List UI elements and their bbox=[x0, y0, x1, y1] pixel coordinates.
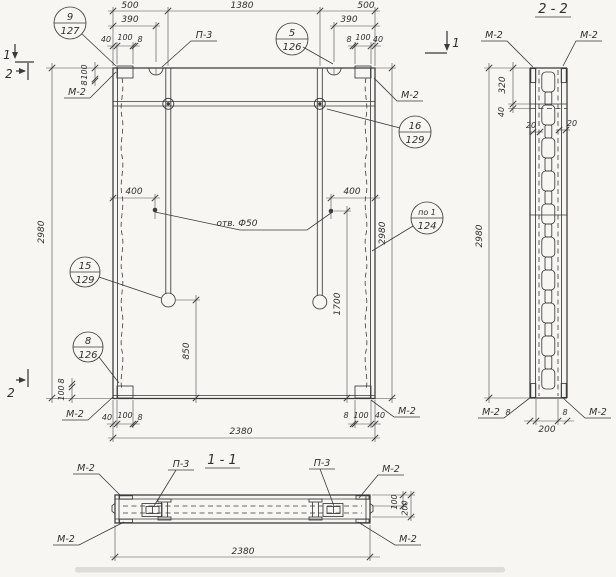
label-m2-top-right: М-2 bbox=[401, 90, 419, 101]
drawing-sheet: отв. Ф50 bbox=[0, 0, 616, 577]
svg-text:1: 1 bbox=[3, 48, 11, 62]
svg-text:по 1: по 1 bbox=[418, 208, 436, 217]
dim-8-s22-right: 8 bbox=[562, 408, 567, 417]
svg-text:5: 5 bbox=[289, 28, 295, 39]
panel-broken-edge-lines bbox=[121, 78, 367, 390]
dim-40-tl: 40 bbox=[101, 35, 111, 44]
dim-850: 850 bbox=[182, 342, 192, 359]
label-m2-s11-tl: М-2 bbox=[77, 463, 95, 474]
dim-400-right: 400 bbox=[343, 187, 360, 197]
svg-text:16: 16 bbox=[409, 121, 422, 132]
dim-400-left: 400 bbox=[125, 187, 142, 197]
svg-text:126: 126 bbox=[282, 42, 301, 53]
dim-20-s22-left: 20 bbox=[526, 121, 536, 130]
label-m2-s11-tr: М-2 bbox=[382, 464, 400, 475]
panel-drawing: отв. Ф50 bbox=[0, 0, 616, 577]
dim-100-vert-bl: 100 bbox=[57, 385, 66, 400]
svg-text:129: 129 bbox=[75, 275, 94, 286]
dim-500-top-right: 500 bbox=[357, 1, 374, 11]
panel-outline bbox=[113, 68, 375, 399]
dim-320-s22: 320 bbox=[498, 76, 508, 93]
dim-40-s22: 40 bbox=[497, 107, 506, 117]
dim-40-tr: 40 bbox=[373, 35, 383, 44]
label-m2-s22-br: М-2 bbox=[589, 407, 607, 418]
top-edge-recesses bbox=[149, 68, 341, 75]
svg-text:2: 2 bbox=[7, 386, 15, 400]
cut-mark-2-top-left: 2 bbox=[5, 63, 28, 81]
section-2-2-view: 2 - 2 bbox=[475, 2, 611, 435]
label-p3-main: П-3 bbox=[196, 30, 213, 41]
dim-2380-s11: 2380 bbox=[232, 547, 255, 557]
callout-8-126: 8 126 bbox=[73, 332, 119, 383]
dim-390-left: 390 bbox=[121, 15, 138, 25]
scan-smudge bbox=[75, 567, 505, 573]
label-m2-top-left: М-2 bbox=[68, 87, 86, 98]
dim-2980-right: 2980 bbox=[378, 221, 388, 244]
section-1-1-title: 1 - 1 bbox=[207, 453, 237, 468]
callout-16-129: 16 129 bbox=[327, 109, 431, 148]
svg-text:124: 124 bbox=[417, 221, 436, 232]
section-1-1-embeds bbox=[142, 499, 343, 520]
dim-100-br: 100 bbox=[353, 411, 368, 420]
dim-1380-top: 1380 bbox=[231, 1, 254, 11]
svg-text:2: 2 bbox=[5, 67, 13, 81]
svg-text:1: 1 bbox=[452, 36, 460, 50]
vertical-channels bbox=[161, 68, 326, 309]
dim-100-s11: 100 bbox=[390, 494, 399, 509]
label-m2-bottom-right: М-2 bbox=[398, 406, 416, 417]
label-m2-s11-br: М-2 bbox=[399, 534, 417, 545]
label-m2-s22-tl: М-2 bbox=[485, 30, 503, 41]
cut-mark-1-top-right: 1 bbox=[425, 31, 460, 53]
dim-8-tl: 8 bbox=[137, 35, 142, 44]
main-elevation-view: отв. Ф50 bbox=[113, 66, 375, 399]
label-m2-s22-tr: М-2 bbox=[580, 30, 598, 41]
callout-5-126: 5 126 bbox=[276, 23, 333, 64]
svg-text:15: 15 bbox=[79, 261, 92, 272]
hole-note: отв. Ф50 bbox=[217, 219, 258, 229]
top-horizontal-channel bbox=[113, 102, 375, 107]
section-2-2-title: 2 - 2 bbox=[538, 2, 568, 17]
dim-1700: 1700 bbox=[333, 292, 343, 315]
dim-100-bl: 100 bbox=[117, 411, 132, 420]
dim-8-br: 8 bbox=[343, 411, 348, 420]
section-2-2-voids bbox=[542, 72, 555, 389]
dim-390-right: 390 bbox=[340, 15, 357, 25]
dim-40-bl: 40 bbox=[102, 413, 112, 422]
cut-mark-2-bottom-left: 2 bbox=[7, 369, 28, 400]
svg-text:8: 8 bbox=[85, 336, 91, 347]
dim-40-br: 40 bbox=[375, 411, 385, 420]
dim-8-tr: 8 bbox=[346, 35, 351, 44]
dim-100-tl: 100 bbox=[117, 33, 132, 42]
corner-embed-plates-m2 bbox=[117, 66, 371, 398]
dim-100-tr: 100 bbox=[355, 33, 370, 42]
dim-200-s11: 200 bbox=[401, 500, 410, 515]
svg-text:126: 126 bbox=[78, 350, 97, 361]
svg-text:129: 129 bbox=[405, 135, 424, 146]
dim-2380-main: 2380 bbox=[230, 427, 253, 437]
dim-8-bl: 8 bbox=[137, 413, 142, 422]
section-1-1-dimensions: 100 200 2380 bbox=[110, 491, 415, 561]
dim-100-vert-tl: 100 bbox=[80, 64, 89, 79]
dim-500-top-left: 500 bbox=[121, 1, 138, 11]
callout-15-129: 15 129 bbox=[70, 257, 161, 298]
dim-200-s22: 200 bbox=[538, 425, 555, 435]
dim-2980-s22: 2980 bbox=[475, 224, 485, 247]
callout-bubbles: 9 127 5 126 16 129 по 1 124 15 129 bbox=[54, 7, 443, 383]
label-m2-s11-bl: М-2 bbox=[57, 534, 75, 545]
label-p3-s11-right: П-3 bbox=[314, 458, 331, 469]
cut-mark-1-top-left: 1 bbox=[3, 44, 34, 62]
dim-2980-left: 2980 bbox=[37, 220, 47, 243]
dim-8-vert-tl: 8 bbox=[80, 80, 89, 85]
section-2-2-body bbox=[530, 68, 567, 398]
dim-8-s22-left: 8 bbox=[505, 408, 510, 417]
dim-20-s22-right: 20 bbox=[567, 119, 577, 128]
label-p3-s11-left: П-3 bbox=[173, 459, 190, 470]
dim-8-vert-bl: 8 bbox=[57, 378, 66, 383]
svg-text:9: 9 bbox=[67, 12, 73, 23]
label-m2-s22-bl: М-2 bbox=[482, 407, 500, 418]
section-1-1-view: 1 - 1 bbox=[53, 453, 421, 561]
label-m2-bottom-left: М-2 bbox=[66, 409, 84, 420]
svg-text:127: 127 bbox=[60, 26, 80, 37]
